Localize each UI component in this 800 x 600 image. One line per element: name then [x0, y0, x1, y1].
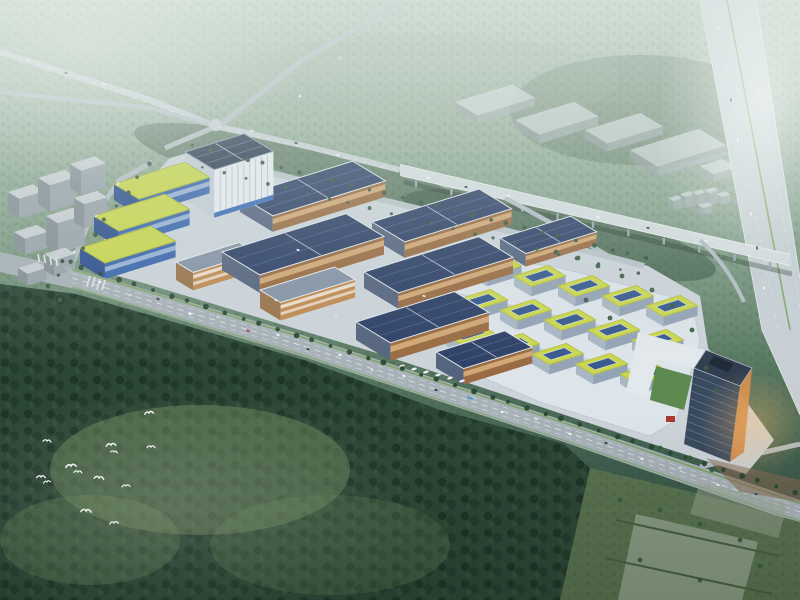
tree	[576, 256, 581, 261]
tree	[151, 288, 155, 292]
tree	[452, 227, 455, 230]
pier	[627, 230, 629, 237]
tree	[544, 412, 548, 416]
tree	[328, 197, 332, 201]
tree	[558, 415, 564, 421]
tree	[309, 337, 314, 342]
tree	[185, 298, 189, 302]
tree	[596, 264, 601, 269]
tree	[266, 182, 270, 186]
tree	[222, 310, 227, 315]
entrance-sign	[666, 416, 675, 422]
tree	[430, 221, 434, 225]
pier	[663, 238, 665, 245]
pier	[733, 254, 735, 261]
tree	[644, 256, 648, 260]
tree	[116, 277, 122, 283]
tree	[702, 461, 707, 466]
tree	[93, 232, 98, 237]
tree	[792, 490, 797, 495]
tree	[349, 183, 353, 187]
tree	[169, 294, 174, 299]
tree	[522, 226, 526, 230]
tree	[260, 161, 264, 165]
tree	[132, 281, 137, 286]
tree	[57, 274, 60, 277]
tree	[126, 190, 130, 194]
tree	[135, 175, 139, 179]
tree	[147, 161, 152, 166]
tree	[453, 383, 457, 387]
tree	[284, 186, 287, 189]
tree	[626, 252, 629, 255]
tree	[491, 236, 494, 239]
tree	[670, 304, 675, 309]
tree	[535, 247, 539, 251]
tree	[704, 366, 709, 371]
tree	[514, 242, 517, 245]
tree	[401, 196, 405, 200]
tree	[245, 157, 250, 162]
tree	[256, 321, 261, 326]
tree	[390, 212, 393, 215]
tree	[684, 456, 688, 460]
tree	[615, 434, 620, 439]
tree	[312, 174, 316, 178]
tree	[758, 564, 763, 569]
tree	[688, 456, 693, 461]
tree	[658, 446, 663, 451]
tree	[714, 388, 719, 393]
tree	[201, 166, 204, 169]
tree	[489, 218, 493, 222]
tree	[698, 578, 703, 583]
pier	[415, 181, 417, 188]
tree	[710, 468, 715, 473]
tree	[275, 327, 279, 331]
tree	[245, 177, 248, 180]
tree	[279, 166, 282, 169]
tree	[346, 201, 349, 204]
tree	[608, 316, 613, 321]
tree	[491, 395, 496, 400]
tree	[658, 508, 663, 513]
pier	[450, 189, 452, 196]
tree	[366, 356, 370, 360]
tree	[79, 265, 84, 270]
tree	[620, 274, 625, 279]
tree	[611, 248, 615, 252]
tree	[222, 171, 226, 175]
scene-canvas	[0, 0, 800, 600]
tree	[228, 153, 232, 157]
tree	[637, 271, 641, 275]
tree	[412, 218, 415, 221]
tree	[382, 191, 386, 195]
tree	[98, 271, 102, 275]
tree	[471, 388, 477, 394]
pier	[698, 246, 700, 253]
tree	[381, 360, 387, 366]
tree	[739, 473, 745, 479]
tree	[329, 344, 333, 348]
tree	[209, 148, 213, 152]
tree	[524, 405, 529, 410]
tree	[630, 439, 634, 443]
highway-junction	[210, 119, 222, 131]
aerial-rendering	[0, 0, 800, 600]
tree	[419, 373, 423, 377]
tree	[294, 333, 300, 339]
tree	[619, 268, 622, 271]
tree	[774, 484, 778, 488]
tree	[434, 203, 438, 207]
tree	[721, 468, 725, 472]
tree	[592, 243, 597, 248]
pier	[556, 213, 558, 220]
tree	[649, 444, 655, 450]
tree	[690, 328, 695, 333]
tree	[541, 231, 544, 234]
tree	[297, 170, 301, 174]
tree	[434, 376, 439, 381]
tree	[368, 188, 371, 191]
tree	[191, 144, 194, 147]
tree	[400, 366, 405, 371]
tree	[102, 217, 106, 221]
tree	[618, 498, 623, 503]
tree	[347, 349, 352, 354]
tree	[368, 206, 372, 210]
tree	[203, 304, 209, 310]
tree	[650, 288, 655, 293]
tree	[453, 209, 456, 212]
tree	[503, 221, 508, 226]
tree	[755, 478, 760, 483]
tree	[471, 213, 475, 217]
tree	[554, 250, 559, 255]
tree	[330, 178, 335, 183]
tree	[668, 451, 673, 456]
tree	[574, 239, 578, 243]
tree	[506, 400, 510, 404]
pier	[769, 262, 771, 269]
tree	[307, 192, 310, 195]
tree	[584, 298, 589, 303]
tree	[419, 200, 424, 205]
tree	[81, 246, 85, 250]
tree	[597, 429, 601, 433]
pier	[592, 222, 594, 229]
tree	[638, 558, 643, 563]
tree	[738, 538, 743, 543]
tree	[577, 422, 582, 427]
tree	[242, 317, 246, 321]
tree	[58, 298, 63, 303]
tree	[69, 260, 73, 264]
tree	[46, 284, 51, 289]
tree	[555, 233, 559, 237]
tree	[698, 522, 703, 527]
tree	[115, 204, 118, 207]
tree	[60, 259, 64, 263]
tree	[473, 232, 477, 236]
